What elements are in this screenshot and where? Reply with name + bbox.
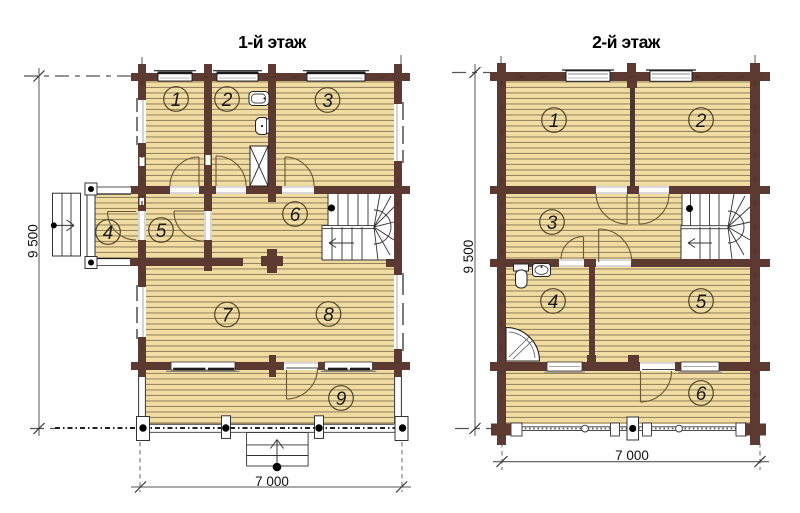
svg-text:3: 3 xyxy=(322,91,333,112)
svg-text:1: 1 xyxy=(549,111,560,132)
svg-text:4: 4 xyxy=(103,223,114,244)
svg-text:2: 2 xyxy=(695,111,707,132)
svg-text:2: 2 xyxy=(221,90,233,111)
svg-text:5: 5 xyxy=(156,221,167,242)
svg-text:5: 5 xyxy=(696,292,707,313)
svg-text:9: 9 xyxy=(336,389,347,410)
svg-text:1: 1 xyxy=(171,90,182,111)
svg-text:7: 7 xyxy=(222,305,234,326)
svg-text:7 000: 7 000 xyxy=(255,474,289,489)
svg-text:6: 6 xyxy=(696,384,707,405)
svg-text:6: 6 xyxy=(290,205,301,226)
svg-text:9 500: 9 500 xyxy=(26,224,41,258)
svg-text:2-й этаж: 2-й этаж xyxy=(592,32,661,52)
svg-text:8: 8 xyxy=(323,305,334,326)
svg-text:3: 3 xyxy=(547,213,558,234)
svg-text:7 000: 7 000 xyxy=(615,448,649,463)
svg-text:1-й этаж: 1-й этаж xyxy=(238,32,307,52)
svg-text:4: 4 xyxy=(548,292,559,313)
svg-text:9 500: 9 500 xyxy=(461,240,476,274)
